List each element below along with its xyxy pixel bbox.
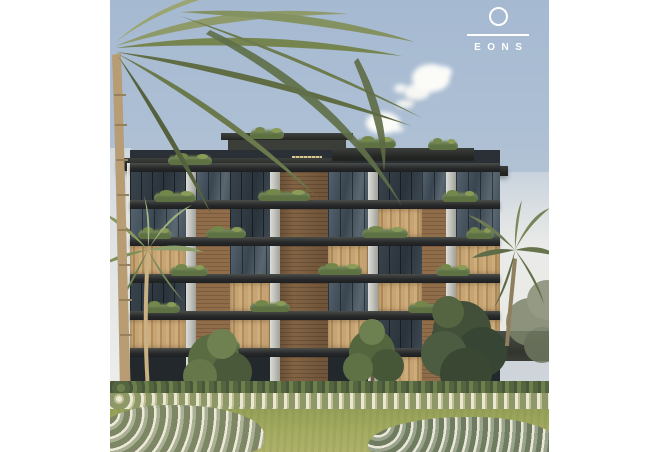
logo-divider-line xyxy=(467,34,529,36)
logo-wordmark: EONS xyxy=(463,42,533,53)
architectural-rendering-photo: EONS xyxy=(110,0,549,452)
logo-circle-icon xyxy=(489,7,508,26)
eons-logo: EONS xyxy=(463,7,533,53)
